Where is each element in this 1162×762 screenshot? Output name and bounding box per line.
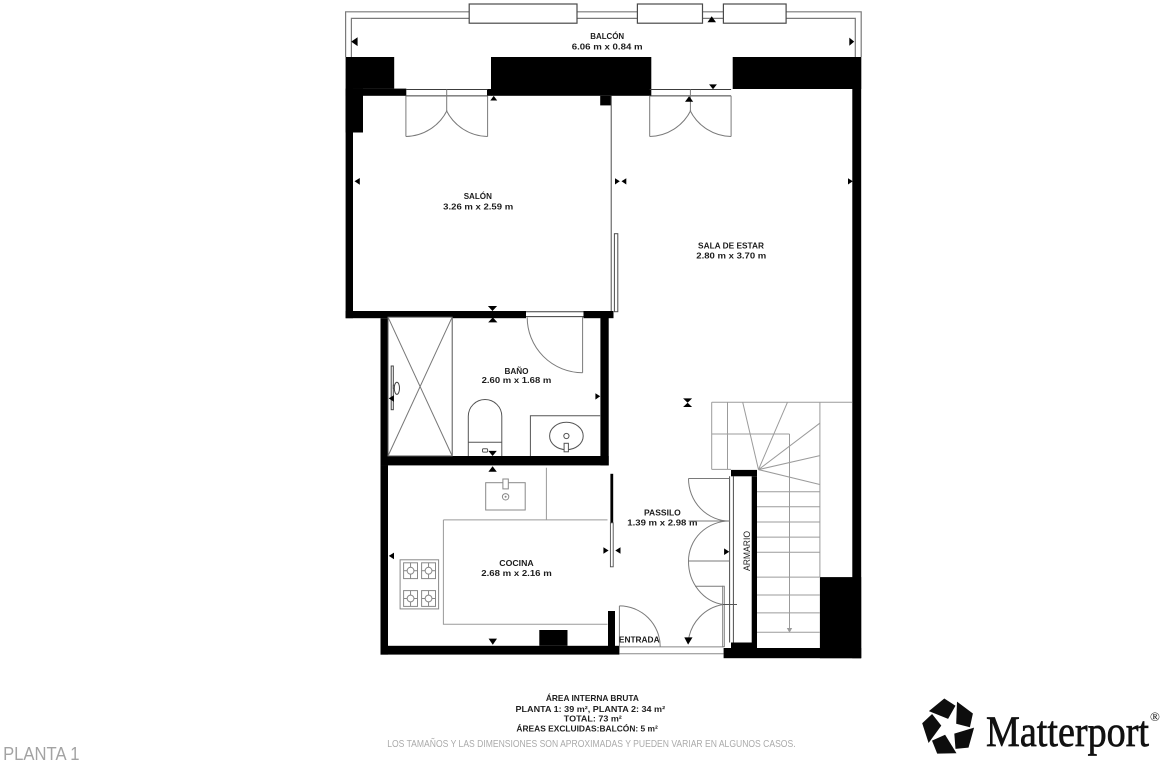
svg-text:LOS TAMAÑOS Y LAS DIMENSIONES: LOS TAMAÑOS Y LAS DIMENSIONES SON APROXI…	[387, 737, 795, 750]
svg-text:PLANTA 1: PLANTA 1	[3, 743, 79, 762]
svg-text:2.80 m x 3.70 m: 2.80 m x 3.70 m	[696, 250, 766, 260]
svg-text:2.68 m x 2.16 m: 2.68 m x 2.16 m	[481, 568, 552, 578]
svg-text:2.60 m x 1.68 m: 2.60 m x 1.68 m	[482, 375, 552, 385]
svg-text:PLANTA 1: 39 m², PLANTA 2: 34: PLANTA 1: 39 m², PLANTA 2: 34 m²	[516, 704, 666, 714]
svg-text:ÁREAS EXCLUIDAS:BALCÓN: 5 m²: ÁREAS EXCLUIDAS:BALCÓN: 5 m²	[516, 722, 658, 733]
svg-text:3.26 m x 2.59 m: 3.26 m x 2.59 m	[443, 202, 513, 212]
svg-text:ENTRADA: ENTRADA	[619, 634, 660, 644]
svg-text:BALCÓN: BALCÓN	[590, 30, 624, 41]
svg-text:SALA DE ESTAR: SALA DE ESTAR	[698, 240, 764, 250]
svg-text:PASSILO: PASSILO	[644, 507, 681, 517]
svg-text:Matterport: Matterport	[986, 709, 1149, 756]
svg-text:®: ®	[1150, 709, 1160, 724]
svg-text:ÁREA INTERNA BRUTA: ÁREA INTERNA BRUTA	[546, 693, 639, 703]
svg-text:COCINA: COCINA	[499, 558, 533, 568]
svg-text:ARMARIO: ARMARIO	[742, 531, 753, 571]
svg-text:1.39 m x 2.98 m: 1.39 m x 2.98 m	[627, 518, 698, 528]
svg-text:SALÓN: SALÓN	[464, 190, 492, 201]
svg-text:6.06 m x 0.84 m: 6.06 m x 0.84 m	[572, 42, 643, 52]
svg-text:TOTAL: 73 m²: TOTAL: 73 m²	[564, 714, 622, 724]
